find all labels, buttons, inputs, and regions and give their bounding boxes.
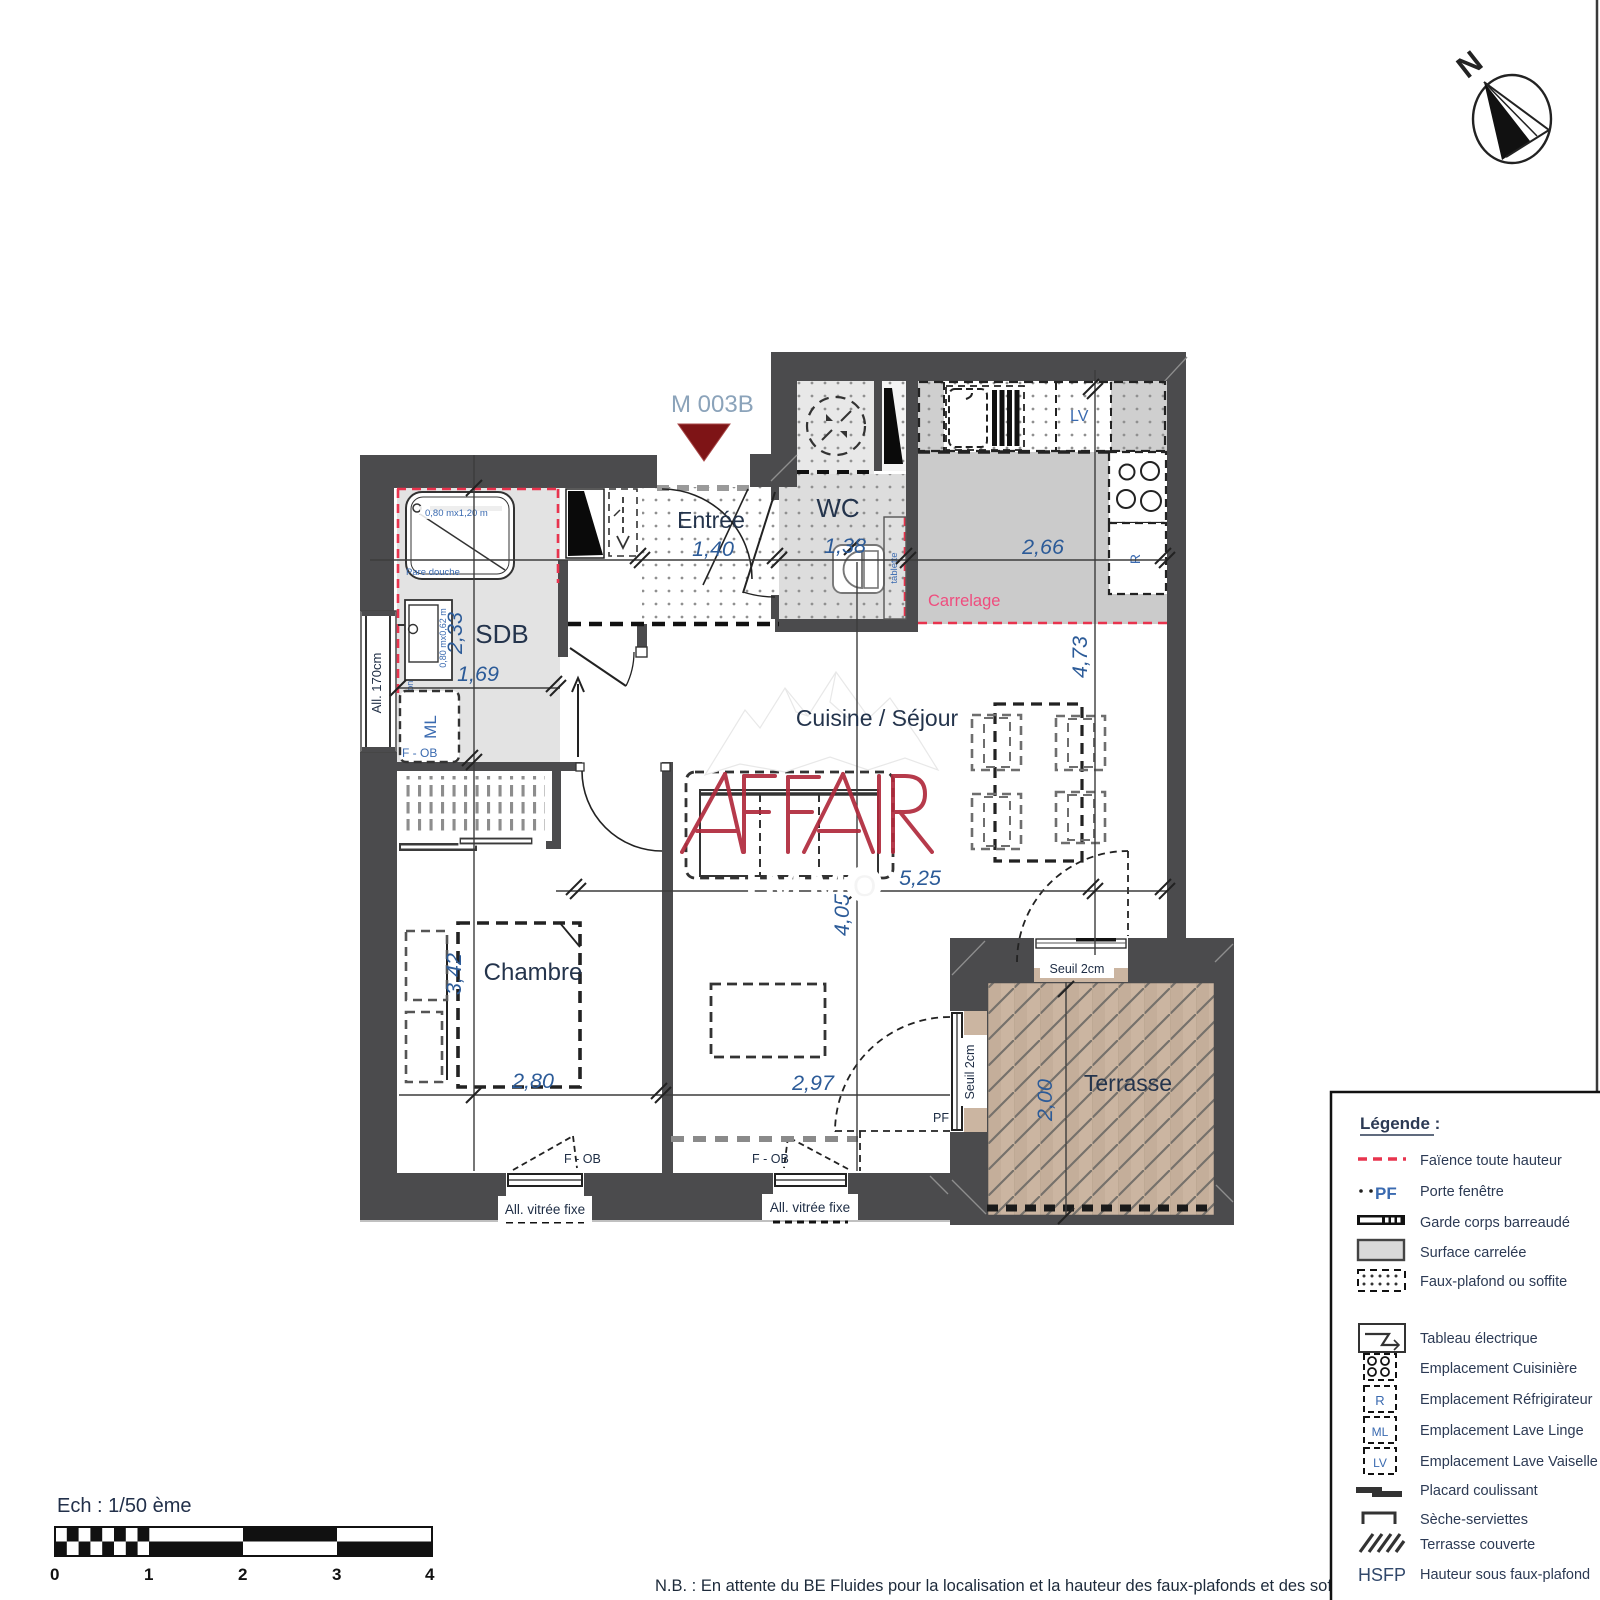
svg-text:Emplacement Lave Vaiselle: Emplacement Lave Vaiselle <box>1420 1454 1598 1470</box>
svg-text:1,38: 1,38 <box>824 534 866 558</box>
svg-text:PF: PF <box>1375 1184 1397 1203</box>
svg-text:2,97: 2,97 <box>791 1071 835 1095</box>
svg-text:N.B. : En attente du BE Fluide: N.B. : En attente du BE Fluides pour la … <box>655 1577 1366 1595</box>
svg-text:M 003B: M 003B <box>671 391 754 418</box>
svg-text:Emplacement Lave Linge: Emplacement Lave Linge <box>1420 1423 1584 1439</box>
svg-text:R: R <box>1375 1393 1384 1408</box>
svg-text:LV: LV <box>1070 408 1089 425</box>
svg-text:Garde corps barreaudé: Garde corps barreaudé <box>1420 1215 1570 1231</box>
svg-text:2,66: 2,66 <box>1021 535 1064 559</box>
svg-text:Terrasse couverte: Terrasse couverte <box>1420 1537 1535 1553</box>
svg-text:Faïence toute hauteur: Faïence toute hauteur <box>1420 1153 1562 1169</box>
svg-text:Légende :: Légende : <box>1360 1114 1440 1133</box>
svg-text:Sèche-serviettes: Sèche-serviettes <box>1420 1512 1528 1528</box>
svg-text:ML: ML <box>1372 1425 1389 1439</box>
svg-text:All. 170cm: All. 170cm <box>369 653 384 714</box>
svg-text:3: 3 <box>332 1565 341 1584</box>
svg-text:5,25: 5,25 <box>899 866 942 890</box>
svg-text:Faux-plafond ou soffite: Faux-plafond ou soffite <box>1420 1274 1567 1290</box>
svg-text:Terrasse: Terrasse <box>1084 1070 1172 1096</box>
svg-text:F - OB: F - OB <box>752 1152 789 1166</box>
svg-text:Ech : 1/50 ème: Ech : 1/50 ème <box>57 1495 192 1517</box>
svg-text:Emplacement Cuisinière: Emplacement Cuisinière <box>1420 1361 1577 1377</box>
svg-text:0: 0 <box>50 1565 59 1584</box>
svg-text:F - OB: F - OB <box>564 1152 601 1166</box>
svg-text:Porte fenêtre: Porte fenêtre <box>1420 1184 1504 1200</box>
svg-text:1,69: 1,69 <box>457 662 499 686</box>
svg-text:Chambre: Chambre <box>484 959 583 986</box>
svg-text:Seuil 2cm: Seuil 2cm <box>963 1045 977 1100</box>
svg-text:SDB: SDB <box>475 619 528 649</box>
svg-text:4,73: 4,73 <box>1068 636 1092 678</box>
svg-text:PF: PF <box>933 1111 949 1125</box>
svg-text:Hauteur sous faux-plafond: Hauteur sous faux-plafond <box>1420 1567 1590 1583</box>
svg-text:Emplacement Réfrigirateur: Emplacement Réfrigirateur <box>1420 1392 1593 1408</box>
svg-text:2,00: 2,00 <box>1033 1079 1057 1122</box>
svg-text:1,40: 1,40 <box>692 537 734 561</box>
svg-text:Cuisine / Séjour: Cuisine / Séjour <box>796 705 959 731</box>
svg-text:O: O <box>853 870 876 903</box>
svg-text:3,42: 3,42 <box>442 953 466 995</box>
svg-text:Seuil 2cm: Seuil 2cm <box>1050 962 1105 976</box>
svg-text:2,80: 2,80 <box>511 1069 554 1093</box>
svg-text:All. vitrée fixe: All. vitrée fixe <box>505 1202 585 1217</box>
svg-text:IMM: IMM <box>745 860 852 912</box>
svg-text:R: R <box>1127 554 1143 564</box>
svg-text:Entrée: Entrée <box>677 507 745 533</box>
svg-text:Placard coulissant: Placard coulissant <box>1420 1483 1538 1499</box>
svg-text:F - OB: F - OB <box>402 746 437 760</box>
svg-text:Surface carrelée: Surface carrelée <box>1420 1245 1526 1261</box>
svg-text:Pare douche: Pare douche <box>406 567 460 578</box>
svg-text:tablette: tablette <box>889 552 900 583</box>
svg-text:2: 2 <box>238 1565 247 1584</box>
svg-text:Tableau électrique: Tableau électrique <box>1420 1331 1538 1347</box>
svg-text:Carrelage: Carrelage <box>928 592 1000 610</box>
svg-text:LV: LV <box>1373 1456 1387 1470</box>
svg-text:ML: ML <box>421 715 440 739</box>
svg-text:HSFP: HSFP <box>1358 1565 1406 1585</box>
svg-text:All. vitrée fixe: All. vitrée fixe <box>770 1200 850 1215</box>
svg-text:0,80 mx1,20 m: 0,80 mx1,20 m <box>425 508 488 519</box>
svg-text:4: 4 <box>425 1565 435 1584</box>
svg-text:WC: WC <box>816 493 859 523</box>
svg-text:1: 1 <box>144 1565 153 1584</box>
svg-text:2,33: 2,33 <box>443 612 467 655</box>
